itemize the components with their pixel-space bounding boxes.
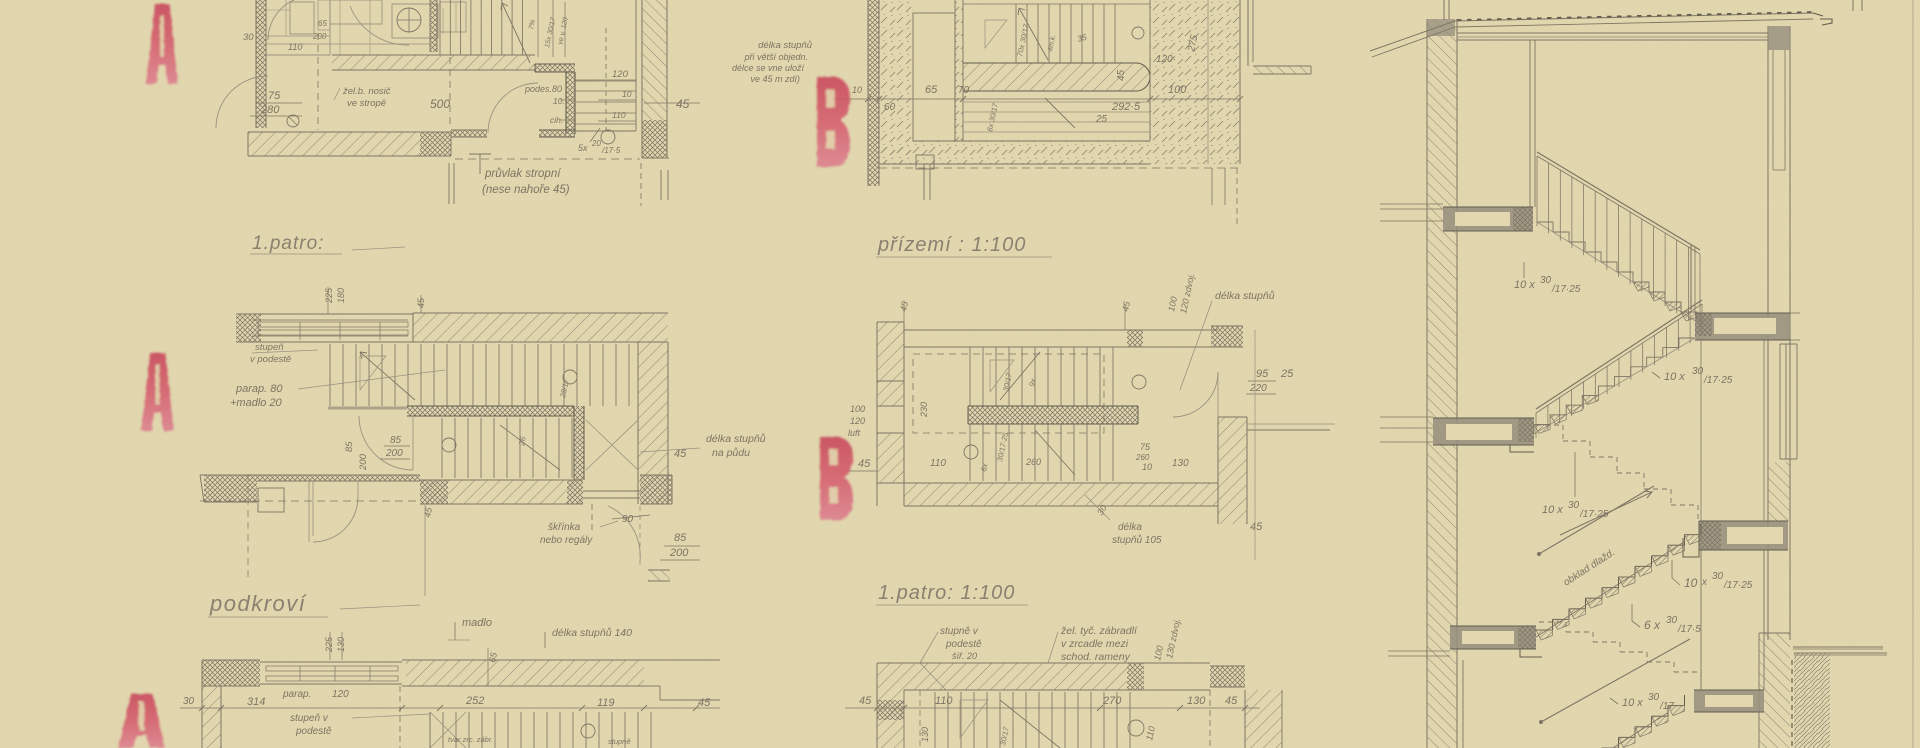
svg-text:200: 200 [358, 453, 369, 471]
svg-text:180: 180 [336, 288, 346, 303]
svg-text:220: 220 [1249, 383, 1267, 394]
svg-text:95: 95 [1256, 368, 1269, 380]
svg-text:šíř. 20: šíř. 20 [952, 651, 977, 661]
svg-text:314: 314 [247, 696, 265, 708]
svg-text:/17: /17 [1659, 701, 1674, 712]
svg-text:stupně v: stupně v [940, 626, 979, 637]
svg-text:120: 120 [850, 416, 865, 426]
svg-text:85: 85 [344, 441, 355, 452]
svg-text:parap.: parap. [282, 689, 311, 700]
svg-text:130: 130 [920, 727, 930, 742]
svg-text:110: 110 [288, 42, 302, 52]
svg-text:stupeň: stupeň [255, 342, 284, 353]
svg-text:5x: 5x [578, 143, 588, 153]
svg-text:10: 10 [1142, 462, 1152, 472]
svg-text:30: 30 [1712, 571, 1724, 582]
svg-text:225: 225 [324, 287, 334, 304]
svg-text:tvar zrc. zábr.: tvar zrc. zábr. [448, 735, 493, 744]
svg-text:10 x: 10 x [1622, 697, 1643, 709]
svg-text:270: 270 [1102, 695, 1122, 707]
svg-text:délka stupňů: délka stupňů [1215, 290, 1275, 302]
svg-text:45: 45 [1116, 69, 1127, 81]
svg-text:119: 119 [597, 697, 615, 709]
svg-text:žel.b. nosič: žel.b. nosič [342, 86, 391, 97]
svg-text:škřínka: škřínka [548, 522, 581, 533]
svg-text:podestě: podestě [945, 639, 982, 650]
svg-text:30: 30 [1648, 692, 1660, 703]
svg-text:45: 45 [1250, 521, 1263, 533]
svg-text:madlo: madlo [462, 617, 492, 629]
svg-text:/17·5: /17·5 [601, 146, 621, 155]
svg-text:200: 200 [669, 547, 689, 559]
svg-text:130: 130 [336, 637, 346, 652]
svg-text:/17·5: /17·5 [1677, 624, 1701, 635]
svg-text:85: 85 [390, 435, 402, 446]
svg-text:ve 45 m zdí): ve 45 m zdí) [750, 74, 800, 84]
svg-text:45: 45 [859, 695, 872, 707]
svg-text:x: x [1701, 577, 1708, 588]
svg-text:200: 200 [312, 32, 327, 41]
svg-text:1.patro: 1:100: 1.patro: 1:100 [878, 582, 1015, 604]
svg-text:na půdu: na půdu [712, 447, 750, 459]
svg-text:75: 75 [268, 90, 281, 102]
svg-text:nebo regály: nebo regály [540, 535, 593, 546]
svg-text:podestě: podestě [295, 726, 332, 737]
svg-text:260: 260 [1025, 457, 1041, 467]
svg-text:průvlak stropní: průvlak stropní [484, 168, 562, 180]
svg-text:luft: luft [848, 428, 861, 438]
svg-text:110: 110 [930, 458, 946, 469]
svg-text:schod. rameny: schod. rameny [1061, 651, 1131, 663]
svg-text:přízemí : 1:100: přízemí : 1:100 [877, 234, 1026, 256]
svg-text:10.: 10. [553, 96, 565, 106]
svg-text:/17·25: /17·25 [1579, 509, 1609, 520]
svg-text:10: 10 [852, 85, 862, 95]
svg-text:280: 280 [260, 104, 280, 116]
svg-text:110: 110 [612, 110, 626, 120]
svg-text:6 x: 6 x [1644, 618, 1661, 632]
svg-text:85: 85 [674, 532, 687, 544]
svg-text:25: 25 [1095, 114, 1108, 125]
svg-text:30: 30 [1568, 500, 1580, 511]
svg-text:120: 120 [332, 689, 349, 700]
svg-text:252: 252 [465, 695, 484, 707]
svg-text:45: 45 [858, 458, 871, 470]
svg-text:podes.80: podes.80 [524, 84, 562, 94]
svg-text:45: 45 [698, 697, 711, 709]
svg-text:stupňů 105: stupňů 105 [1112, 534, 1162, 546]
svg-text:stupně: stupně [608, 737, 631, 746]
svg-text:65: 65 [318, 19, 327, 28]
svg-text:230: 230 [919, 402, 929, 418]
svg-text:délka: délka [1118, 522, 1142, 533]
svg-text:65: 65 [925, 84, 938, 96]
svg-text:30: 30 [183, 696, 195, 707]
svg-text:30: 30 [1666, 615, 1678, 626]
svg-text:/17·25: /17·25 [1703, 375, 1733, 386]
svg-text:70: 70 [958, 85, 970, 96]
svg-text:110: 110 [935, 695, 953, 707]
svg-text:120: 120 [612, 69, 629, 80]
svg-text:200: 200 [385, 448, 403, 459]
svg-text:260: 260 [1135, 453, 1150, 462]
svg-text:10 x: 10 x [1514, 279, 1535, 291]
svg-text:10 x: 10 x [1664, 371, 1685, 383]
svg-text:10 x: 10 x [1542, 504, 1563, 516]
svg-text:500: 500 [430, 97, 450, 111]
svg-text:délce se vne uloží: délce se vne uloží [732, 63, 806, 73]
svg-text:30: 30 [1540, 275, 1552, 286]
svg-text:120·: 120· [1156, 54, 1176, 65]
svg-text:100: 100 [1168, 84, 1187, 96]
svg-text:podkroví: podkroví [209, 591, 307, 616]
svg-text:100: 100 [850, 404, 865, 414]
svg-text:/17·25: /17·25 [1723, 580, 1753, 591]
svg-text:(nese nahoře 45): (nese nahoře 45) [482, 184, 570, 196]
svg-text:délka stupňů 140: délka stupňů 140 [552, 627, 632, 639]
svg-text:1.patro:: 1.patro: [252, 233, 324, 254]
svg-text:délka stupňů: délka stupňů [758, 40, 813, 51]
svg-text:v zrcadle mezi: v zrcadle mezi [1061, 638, 1129, 650]
svg-text:225: 225 [324, 636, 334, 653]
svg-text:parap. 80: parap. 80 [235, 383, 283, 395]
svg-text:20: 20 [591, 139, 601, 148]
svg-text:292·5: 292·5 [1111, 101, 1141, 113]
svg-text:30: 30 [1692, 366, 1704, 377]
svg-text:60: 60 [884, 102, 896, 113]
svg-text:při větší objedn.: při větší objedn. [743, 52, 808, 62]
svg-text:+madlo 20: +madlo 20 [230, 397, 283, 409]
svg-text:25: 25 [1280, 368, 1294, 380]
svg-text:45: 45 [676, 97, 690, 111]
svg-text:30: 30 [243, 32, 254, 43]
svg-text:75: 75 [1140, 442, 1151, 452]
svg-text:45: 45 [1225, 695, 1238, 707]
svg-text:90: 90 [622, 514, 634, 525]
svg-text:10: 10 [622, 89, 632, 99]
svg-text:délka stupňů: délka stupňů [706, 433, 766, 445]
svg-text:ve stropě: ve stropě [347, 98, 386, 109]
svg-text:130: 130 [1172, 458, 1189, 469]
svg-text:10: 10 [1684, 576, 1698, 590]
svg-text:130: 130 [1187, 695, 1206, 707]
svg-text:v podestě: v podestě [250, 354, 291, 365]
svg-text:žel. tyč. zábradlí: žel. tyč. zábradlí [1060, 625, 1138, 637]
svg-text:/17·25: /17·25 [1551, 284, 1581, 295]
svg-text:stupeň v: stupeň v [290, 713, 329, 724]
